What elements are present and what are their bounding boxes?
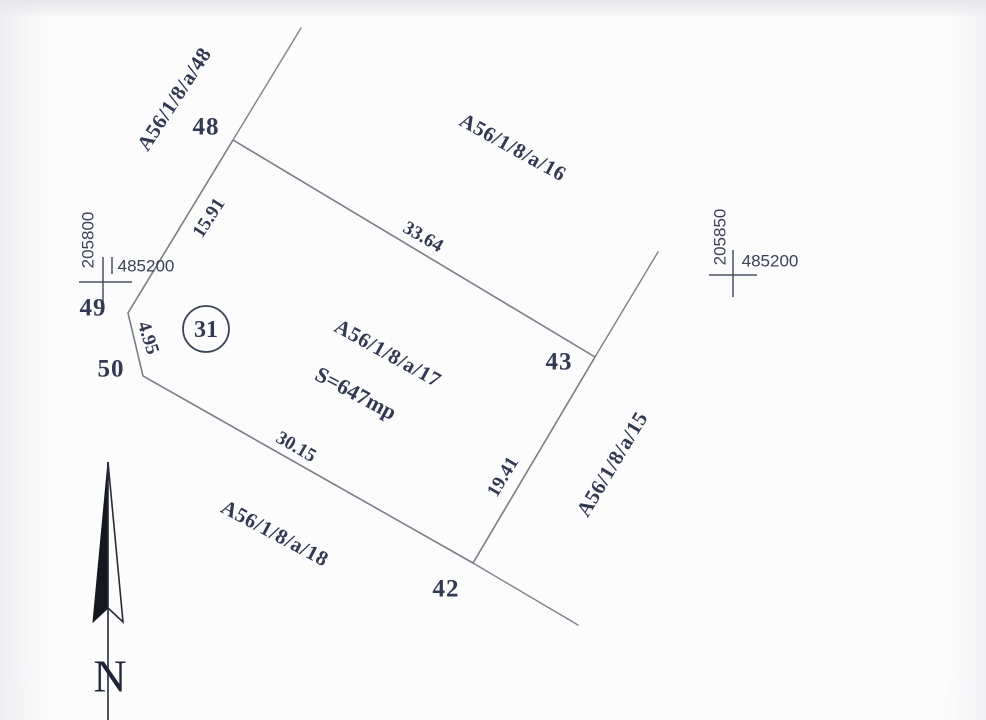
north-arrow-head-left: [93, 462, 108, 622]
dimension-48-49: 15.91: [189, 194, 230, 241]
parcel-label-a15: A56/1/8/a/15: [571, 407, 652, 521]
point-label-48: 48: [193, 114, 220, 141]
cadastral-plan: 205800 485200 205850 485200 A56/1/8/a/48…: [0, 0, 986, 720]
plan-drawing: 205800 485200 205850 485200 A56/1/8/a/48…: [0, 0, 986, 720]
grid-right-easting: 485200: [742, 252, 799, 271]
north-arrow-icon: N: [93, 462, 127, 720]
parcel-number: 31: [194, 317, 218, 343]
parcel-label-a16: A56/1/8/a/16: [456, 108, 571, 186]
north-arrow-head-right: [108, 462, 123, 622]
parcel-number-circle: 31: [183, 306, 229, 352]
parcel-area-label: S=647mp: [311, 361, 401, 425]
north-label: N: [93, 651, 126, 702]
parcel-label-a18: A56/1/8/a/18: [217, 495, 332, 572]
grid-left-northing: 205800: [79, 212, 98, 269]
grid-right-northing: 205850: [711, 209, 730, 266]
point-label-42: 42: [433, 576, 460, 603]
dimension-43-48: 33.64: [399, 217, 447, 257]
boundary-extension-below-42: [473, 563, 578, 625]
boundary-extension-above-48: [233, 28, 301, 140]
boundary-extension-above-43: [595, 252, 658, 357]
dimension-42-43: 19.41: [483, 453, 523, 500]
point-label-50: 50: [98, 356, 125, 383]
grid-cross-left: 205800 485200: [79, 212, 175, 302]
dimension-50-42: 30.15: [272, 427, 320, 467]
point-label-43: 43: [546, 349, 573, 376]
point-label-49: 49: [80, 295, 107, 322]
grid-cross-right: 205850 485200: [709, 209, 798, 297]
grid-left-easting: 485200: [118, 257, 175, 276]
